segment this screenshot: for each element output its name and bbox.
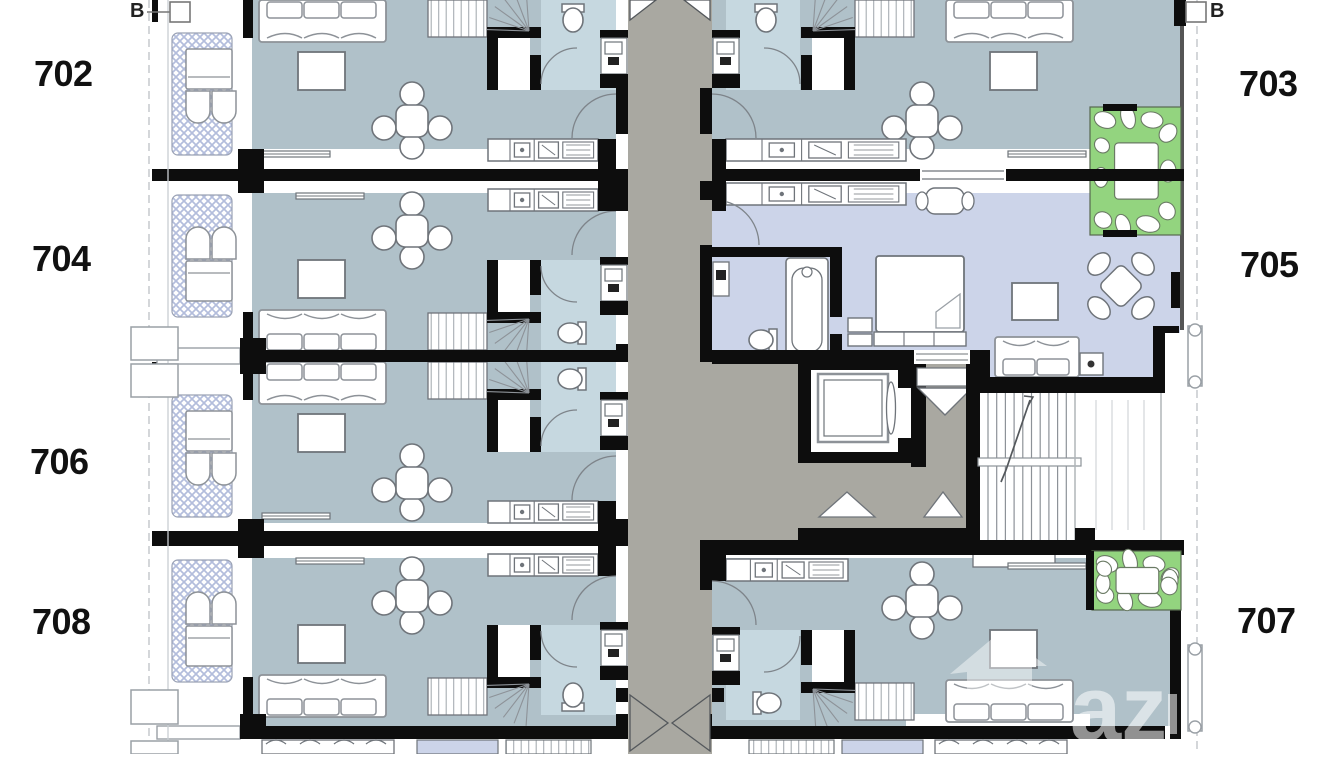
svg-text:705: 705	[1240, 244, 1299, 285]
svg-text:703: 703	[1239, 63, 1298, 104]
svg-text:702: 702	[34, 53, 93, 94]
svg-text:704: 704	[32, 238, 91, 279]
svg-text:az: az	[1070, 658, 1167, 754]
svg-text:707: 707	[1237, 600, 1296, 641]
svg-text:B: B	[1210, 0, 1224, 22]
svg-text:B: B	[130, 0, 144, 22]
svg-text:706: 706	[30, 441, 89, 482]
svg-text:708: 708	[32, 601, 91, 642]
